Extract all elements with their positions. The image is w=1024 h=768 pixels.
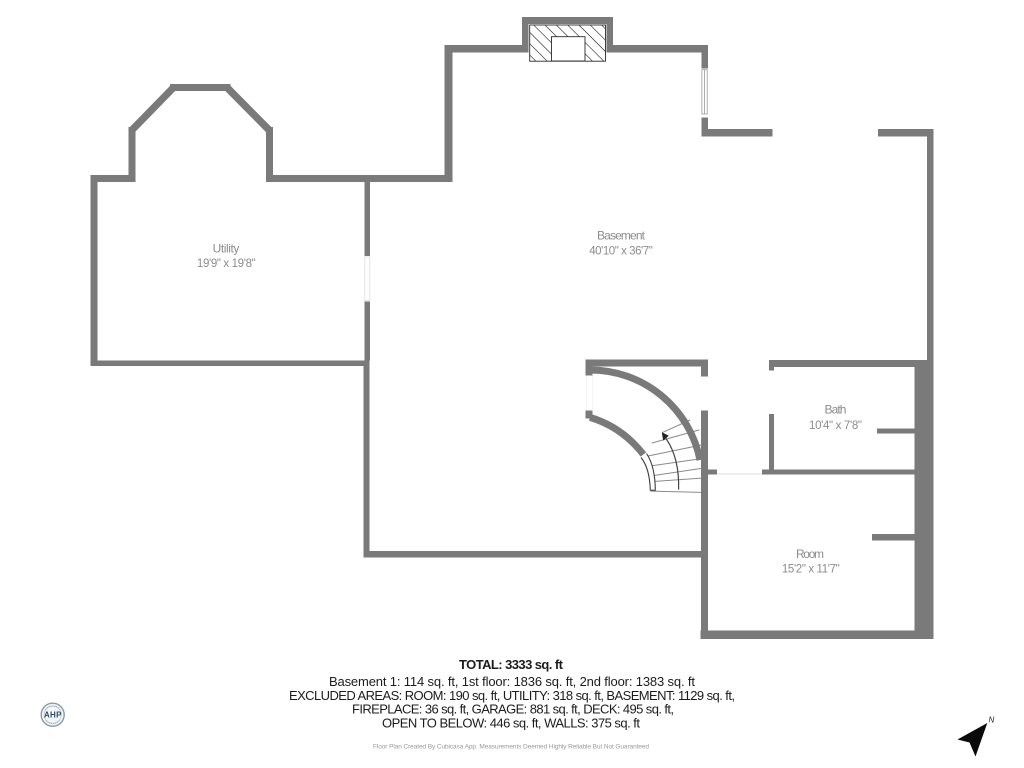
svg-text:Utility: Utility	[213, 241, 240, 255]
svg-text:19'9" x 19'8": 19'9" x 19'8"	[197, 258, 256, 270]
svg-text:AHP: AHP	[44, 711, 62, 720]
svg-text:FIREPLACE: 36 sq. ft, GARAGE:: FIREPLACE: 36 sq. ft, GARAGE: 881 sq. ft…	[352, 702, 674, 717]
svg-text:Floor Plan Created By Cubicasa: Floor Plan Created By Cubicasa App. Meas…	[373, 744, 649, 751]
svg-text:Basement: Basement	[597, 228, 646, 242]
svg-text:N: N	[989, 716, 995, 725]
svg-text:OPEN TO BELOW: 446 sq. ft, WAL: OPEN TO BELOW: 446 sq. ft, WALLS: 375 sq…	[382, 716, 640, 731]
svg-text:Basement 1: 114 sq. ft, 1st fl: Basement 1: 114 sq. ft, 1st floor: 1836 …	[329, 674, 695, 689]
svg-text:Room: Room	[796, 547, 824, 561]
svg-text:15'2" x 11'7": 15'2" x 11'7"	[782, 564, 840, 576]
svg-text:TOTAL: 3333 sq. ft: TOTAL: 3333 sq. ft	[459, 657, 564, 672]
svg-text:Bath: Bath	[825, 403, 847, 417]
svg-text:10'4" x 7'8": 10'4" x 7'8"	[809, 420, 862, 432]
svg-text:40'10" x 36'7": 40'10" x 36'7"	[589, 245, 653, 257]
